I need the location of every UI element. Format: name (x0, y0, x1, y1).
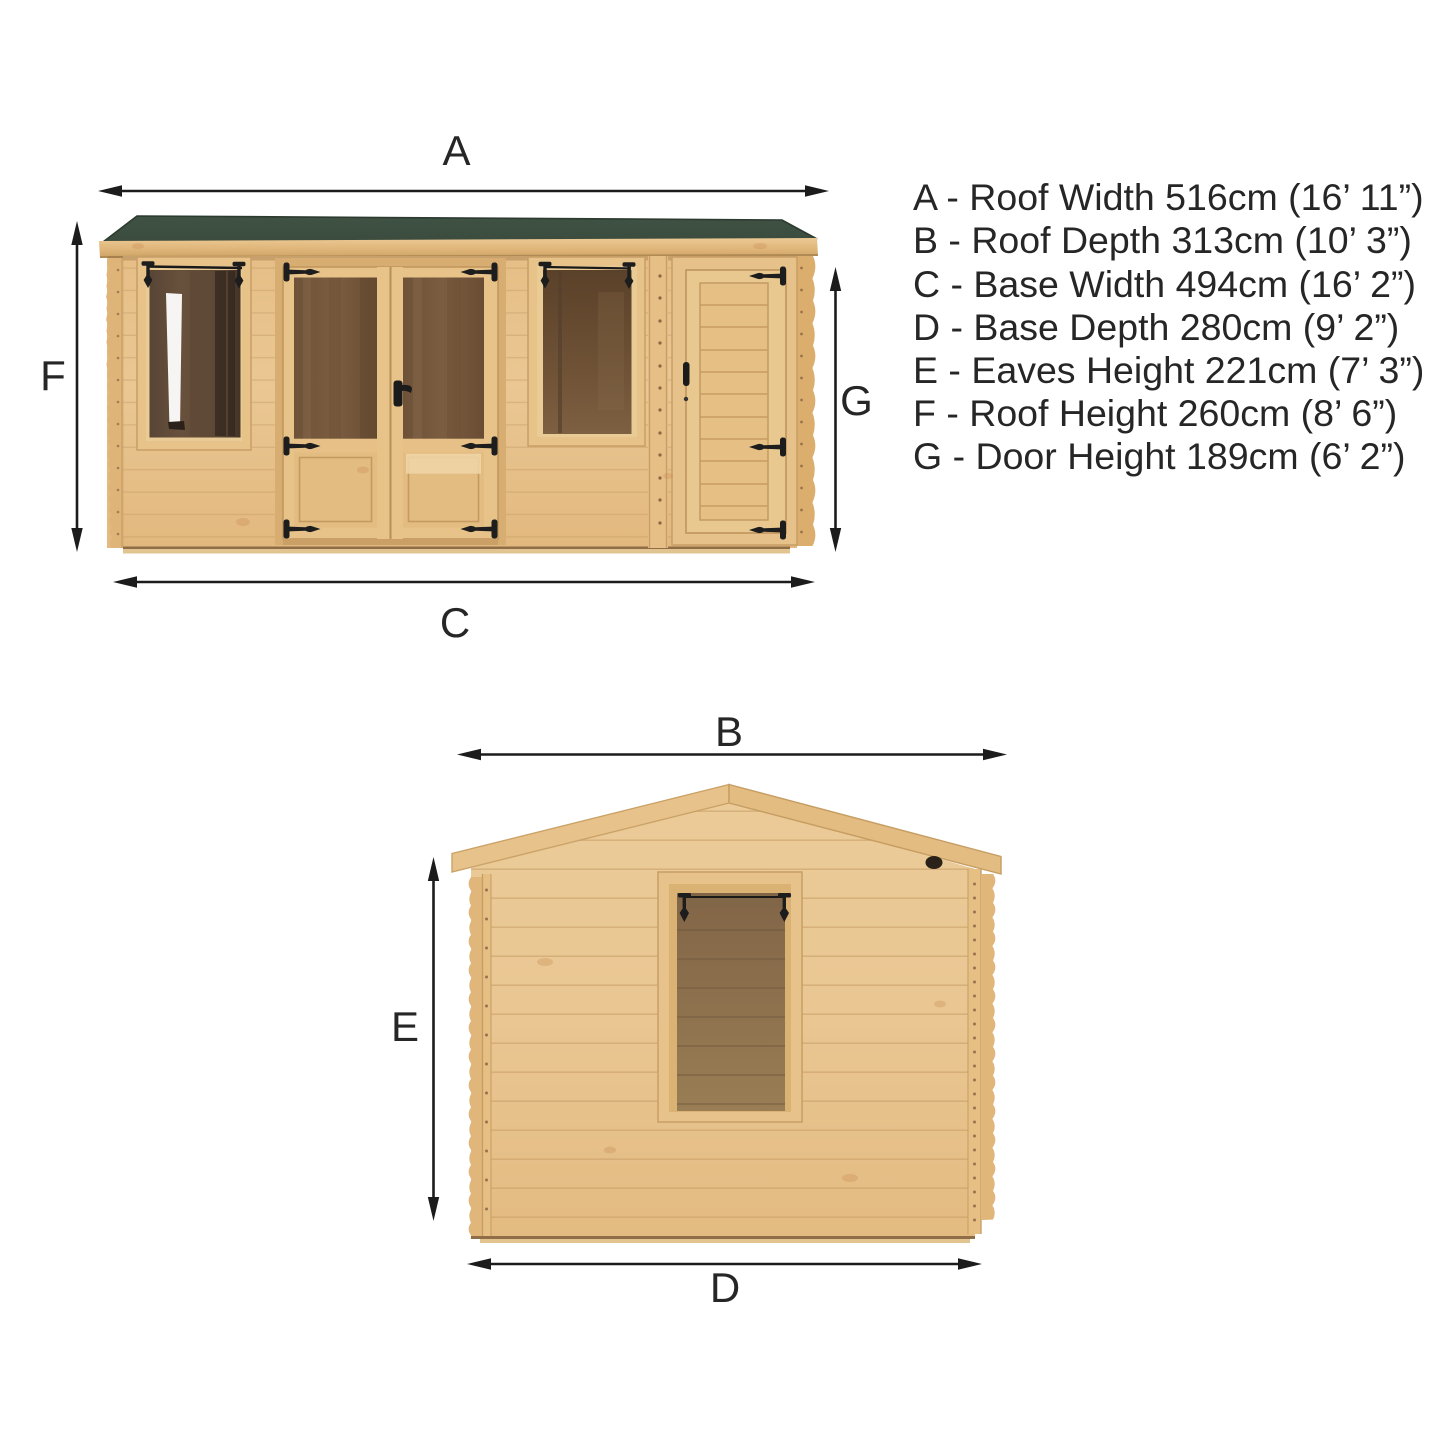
svg-text:B - Roof Depth 313cm (10’ 3”): B - Roof Depth 313cm (10’ 3”) (913, 219, 1412, 261)
svg-text:C: C (440, 599, 470, 646)
svg-text:F: F (40, 352, 66, 399)
svg-text:E: E (391, 1003, 419, 1050)
svg-text:D: D (710, 1264, 740, 1311)
svg-text:B: B (715, 708, 743, 755)
svg-text:G: G (840, 377, 873, 424)
svg-text:A - Roof Width 516cm (16’ 11”): A - Roof Width 516cm (16’ 11”) (913, 176, 1424, 218)
svg-text:G - Door Height 189cm (6’ 2”): G - Door Height 189cm (6’ 2”) (913, 435, 1406, 477)
svg-text:D - Base Depth 280cm (9’ 2”): D - Base Depth 280cm (9’ 2”) (913, 306, 1399, 348)
svg-text:E - Eaves Height 221cm (7’ 3”): E - Eaves Height 221cm (7’ 3”) (913, 349, 1424, 391)
svg-text:F - Roof Height 260cm (8’ 6”): F - Roof Height 260cm (8’ 6”) (913, 392, 1397, 434)
svg-text:A: A (442, 127, 470, 174)
svg-text:C - Base Width 494cm (16’ 2”): C - Base Width 494cm (16’ 2”) (913, 263, 1416, 305)
